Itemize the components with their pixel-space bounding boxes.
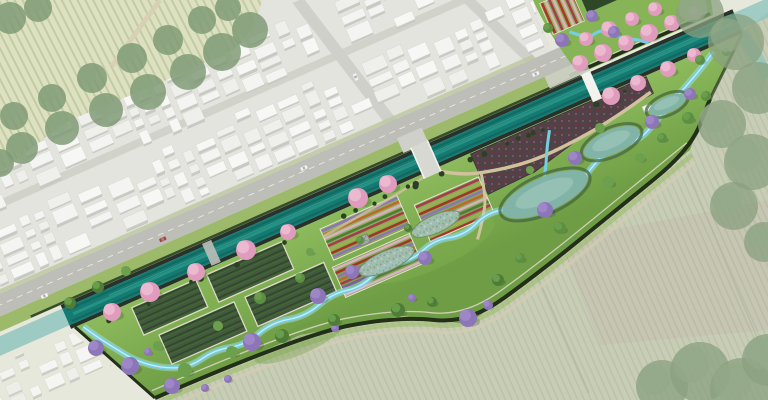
- masterplan-rendering: Aerial architectural rendering of a line…: [0, 0, 768, 400]
